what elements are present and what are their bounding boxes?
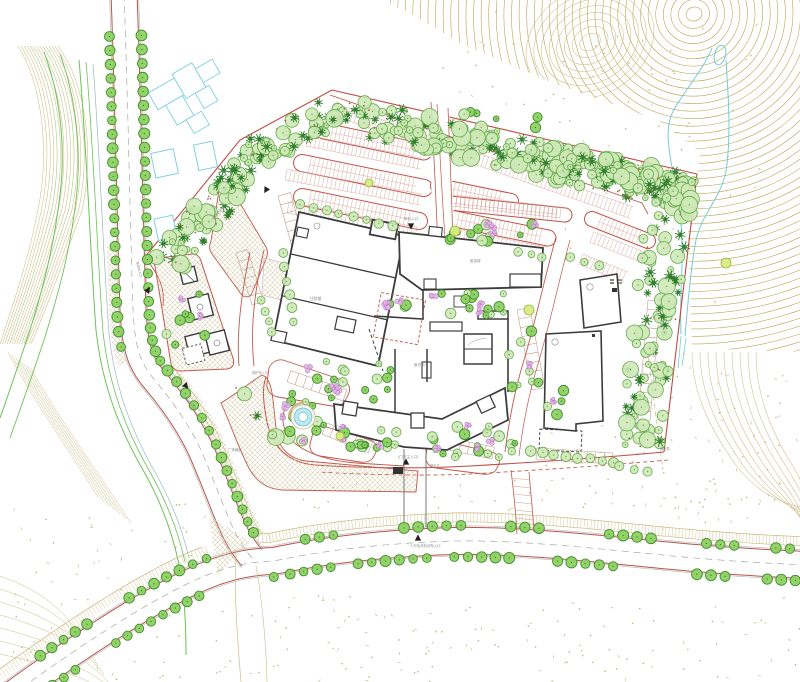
svg-text:医技楼: 医技楼	[470, 258, 481, 263]
svg-text:绿化带: 绿化带	[660, 446, 670, 451]
svg-text:住院楼: 住院楼	[310, 296, 322, 301]
svg-text:医疗街: 医疗街	[414, 362, 425, 367]
svg-text:停车位: 停车位	[430, 463, 440, 468]
svg-text:人行及非机动车入口: 人行及非机动车入口	[410, 543, 441, 548]
svg-text:广场铺装: 广场铺装	[228, 447, 242, 452]
svg-text:车行入口: 车行入口	[404, 216, 419, 221]
svg-text:救护车入口: 救护车入口	[252, 370, 268, 375]
svg-text:(门诊主入口): (门诊主入口)	[398, 454, 418, 459]
